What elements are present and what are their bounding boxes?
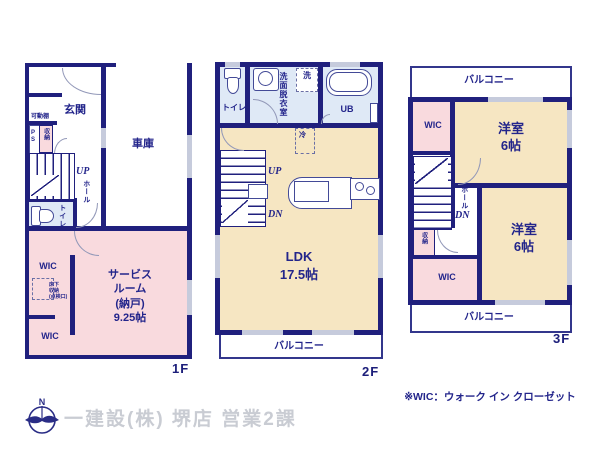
door-arc xyxy=(54,138,67,154)
stove-icon xyxy=(350,178,380,200)
window xyxy=(225,62,240,67)
floor-1-plan: 玄関 可動棚 PS 収納 UP ホール トイレ 車庫 WIC 床下 収納 (点検… xyxy=(25,63,192,359)
floor-plan-sheet: 玄関 可動棚 PS 収納 UP ホール トイレ 車庫 WIC 床下 収納 (点検… xyxy=(0,0,600,450)
fridge-label: 冷 xyxy=(299,132,306,141)
window xyxy=(215,235,220,278)
room-upper-label: 洋室 6帖 xyxy=(483,121,539,155)
room-lower-label: 洋室 6帖 xyxy=(496,222,552,256)
wic-upper-label: WIC xyxy=(33,261,63,272)
sliding-door xyxy=(101,128,106,148)
floor-3-label: 3F xyxy=(553,331,570,346)
balcony-bottom-label: バルコニー xyxy=(459,312,519,325)
burner-icon xyxy=(355,182,364,191)
compass-icon: N xyxy=(22,395,62,441)
wall xyxy=(25,355,192,359)
pipe-space-label: PS xyxy=(31,130,37,143)
wic-lower-label: WIC xyxy=(35,331,65,342)
shelf-label: 可動棚 xyxy=(31,114,49,121)
bath-label: UB xyxy=(335,104,359,115)
kitchen-sink-icon xyxy=(294,181,329,202)
ldk-label: LDK 17.5帖 xyxy=(269,248,329,283)
wic-lower-label: WIC xyxy=(432,272,462,283)
wall xyxy=(25,93,62,97)
wall xyxy=(245,62,250,128)
balcony-label: バルコニー xyxy=(269,341,329,354)
stairs-landing xyxy=(248,184,268,199)
entrance-label: 玄関 xyxy=(55,104,95,118)
wall xyxy=(477,188,482,300)
wall xyxy=(25,315,55,319)
door-arc xyxy=(76,203,98,228)
window xyxy=(330,62,360,67)
closet-label: 収納 xyxy=(420,232,427,256)
bath-fixture-icon xyxy=(370,103,378,123)
floor-1-label: 1F xyxy=(172,361,189,376)
floor-2-plan: トイレ 洗面脱衣室 洗 UB 冷 UP DN LDK 17.5帖 バルコニー xyxy=(215,62,387,360)
company-name: 一建設(株) 堺店 営業2課 xyxy=(64,404,297,431)
wall xyxy=(450,102,455,155)
window xyxy=(488,97,543,102)
compass-north-label: N xyxy=(39,397,46,407)
storage-label: 収納 xyxy=(42,128,49,152)
wall xyxy=(25,226,192,231)
toilet-bowl-icon xyxy=(39,209,54,223)
floor-2-label: 2F xyxy=(362,364,379,379)
washroom-label: 洗面脱衣室 xyxy=(278,72,288,122)
down-label: DN xyxy=(268,209,282,220)
sink-basin-icon xyxy=(258,71,273,86)
balcony-top-label: バルコニー xyxy=(459,75,519,88)
garage-label: 車庫 xyxy=(123,138,163,152)
window xyxy=(187,135,192,178)
hall-label: ホール xyxy=(459,186,468,212)
wic-upper-label: WIC xyxy=(418,120,448,131)
service-room-label: サービス ルーム (納戸) 9.25帖 xyxy=(100,268,160,325)
door-arc xyxy=(62,68,101,95)
wic-note: ※WIC：ウォーク イン クローゼット xyxy=(400,389,580,404)
up-label: UP xyxy=(76,166,89,177)
door-arc xyxy=(437,230,458,253)
wall xyxy=(413,151,455,155)
window xyxy=(378,235,383,278)
window xyxy=(567,240,572,285)
window xyxy=(567,110,572,148)
toilet-label: トイレ xyxy=(57,204,66,228)
toilet-bowl-icon xyxy=(227,77,239,94)
down-label: DN xyxy=(455,210,469,221)
burner-icon xyxy=(366,186,375,195)
washer-label: 洗 xyxy=(303,71,311,81)
stairs-winder xyxy=(222,200,248,223)
up-label: UP xyxy=(268,166,281,177)
window xyxy=(187,280,192,315)
wall xyxy=(455,183,567,188)
stairs-winder xyxy=(31,175,59,196)
floor-3-plan: バルコニー WIC 洋室 6帖 ホール DN 収納 xyxy=(408,62,572,348)
toilet-label: トイレ xyxy=(220,103,248,113)
hall-label: ホール xyxy=(81,180,90,206)
stairs-winder xyxy=(415,158,448,184)
bathtub-inner-icon xyxy=(329,72,368,92)
underfloor-label: 床下 収納 (点検口) xyxy=(49,283,75,300)
